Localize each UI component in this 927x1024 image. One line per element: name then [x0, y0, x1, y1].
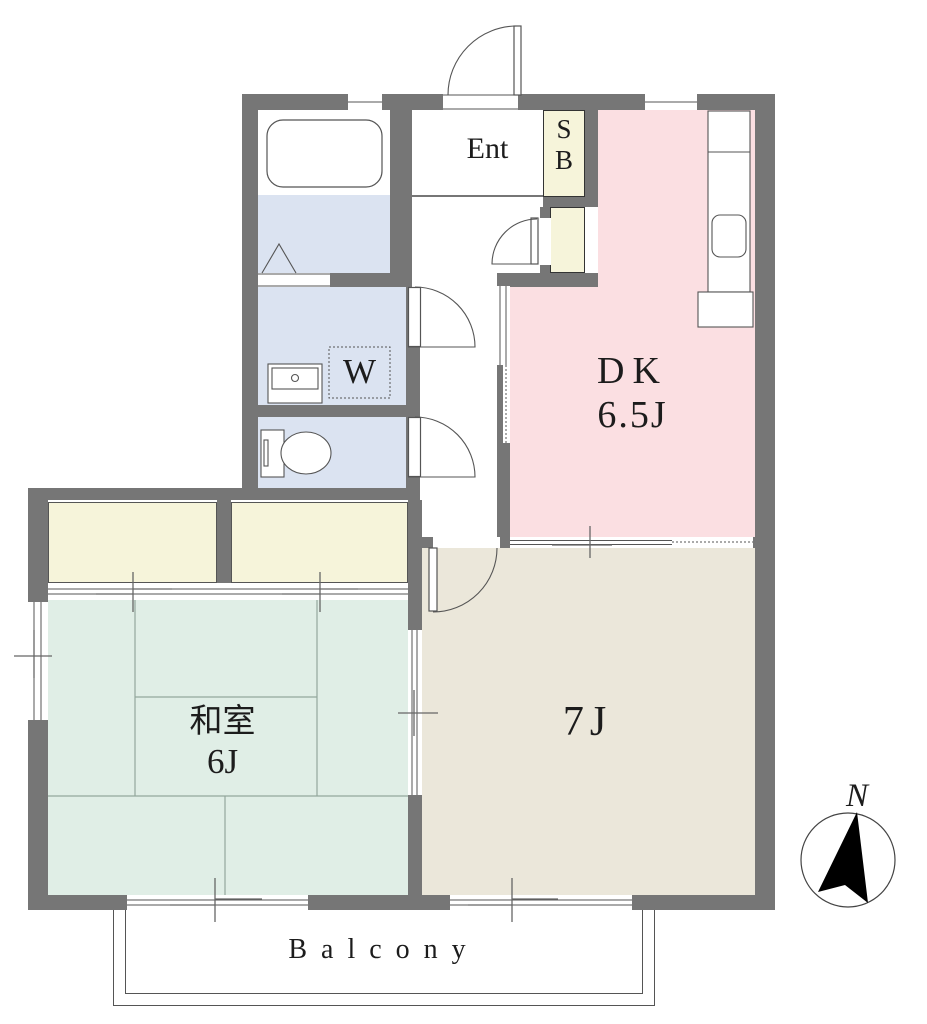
wall	[585, 110, 598, 207]
wall	[543, 197, 598, 207]
wall	[28, 720, 48, 908]
label-dk: DK 6.5J	[545, 350, 720, 437]
entrance-step-line	[412, 195, 543, 197]
dk-name: DK	[545, 350, 720, 394]
door-arc-dk	[492, 219, 538, 264]
bathtub	[267, 120, 382, 187]
slider-hall-dk	[497, 286, 510, 365]
room-dk-upper	[598, 110, 755, 287]
washitsu-name: 和室	[135, 704, 310, 742]
wall	[500, 537, 510, 548]
label-washer: W	[329, 352, 390, 392]
wall	[28, 500, 48, 602]
wall	[28, 488, 410, 500]
shoebox-letter-b: B	[543, 145, 585, 176]
closet-left	[48, 502, 217, 583]
wall	[408, 795, 422, 895]
label-washitsu: 和室 6J	[135, 704, 310, 782]
label-entrance: Ent	[425, 132, 550, 166]
label-shoebox: S B	[543, 114, 585, 176]
door-arc-entrance	[448, 26, 517, 95]
wall	[408, 500, 422, 630]
wall	[632, 895, 775, 910]
compass-circle	[801, 813, 895, 907]
floor-plan: DK 6.5J 和室 6J 7J Ent S B W Balcony N	[0, 0, 927, 1024]
compass-north-arrow	[818, 812, 868, 903]
wall	[497, 273, 598, 287]
shoebox-letter-s: S	[543, 114, 585, 145]
label-7j: 7J	[500, 698, 675, 746]
fusuma-track	[48, 583, 408, 600]
wall	[28, 895, 127, 910]
door-entrance	[514, 26, 521, 95]
wall	[406, 287, 420, 500]
wall	[242, 110, 258, 500]
washitsu-size: 6J	[135, 742, 310, 782]
window-bottom-7j	[450, 895, 632, 910]
bathroom-floor	[258, 195, 390, 273]
dk-size: 6.5J	[545, 394, 720, 438]
slider-washitsu-7j	[408, 630, 422, 795]
wall	[258, 405, 406, 417]
wall	[755, 110, 775, 895]
window-bottom-washitsu	[127, 895, 308, 910]
window-top-bath	[348, 94, 382, 110]
wall	[390, 110, 412, 287]
label-compass-north: N	[832, 778, 882, 815]
doorway-dk	[539, 218, 551, 265]
slider-dk-7j	[510, 537, 672, 548]
slider-hall-dk-pocket	[503, 365, 510, 443]
slider-dk-7j-track	[672, 537, 753, 548]
wall	[217, 500, 231, 585]
compass	[801, 812, 895, 907]
door-dk	[531, 218, 538, 264]
toilet-floor	[258, 417, 406, 488]
label-balcony: Balcony	[125, 934, 643, 966]
closet-right	[231, 502, 408, 583]
window-top-kitchen	[645, 94, 697, 110]
wall	[308, 895, 450, 910]
window-left-washitsu	[28, 602, 48, 720]
wall	[408, 537, 433, 548]
wall	[753, 537, 775, 548]
wall	[330, 273, 390, 287]
dk-storage-box	[550, 207, 585, 273]
entrance-threshold	[443, 94, 518, 110]
doorway-bath	[258, 273, 330, 287]
